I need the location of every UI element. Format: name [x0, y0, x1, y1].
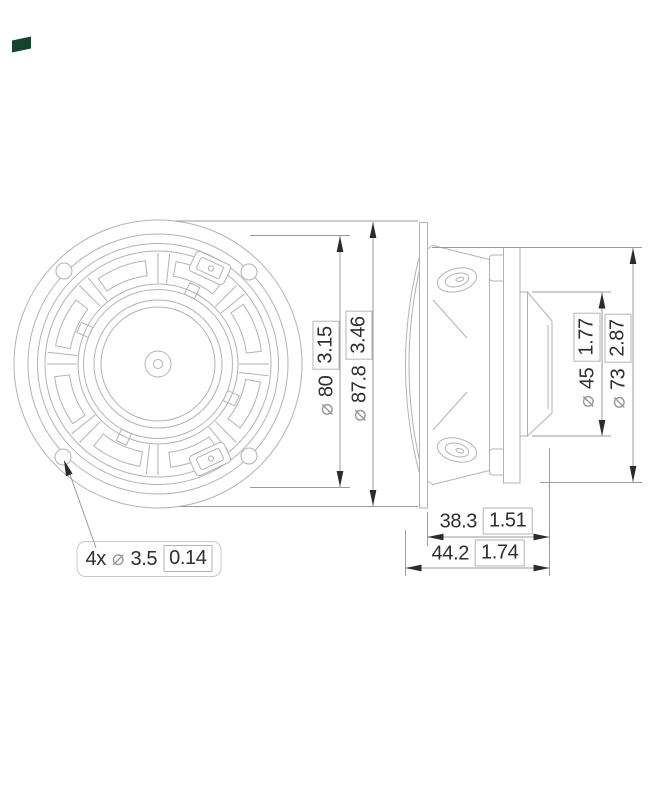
metric-value: 87.8: [349, 366, 369, 403]
metric-value: 73: [608, 369, 628, 390]
inch-value: 0.14: [163, 545, 212, 572]
dim-magnet-rear-label: ⌀ 45 1.77: [574, 312, 601, 407]
front-view: [14, 220, 302, 508]
diameter-icon: ⌀: [577, 395, 598, 408]
inch-value: 2.87: [605, 313, 632, 362]
dim-bolt-holes-callout: 4x ⌀ 3.5 0.14: [77, 541, 222, 577]
metric-value: 80: [316, 376, 336, 397]
inch-value: 1.74: [475, 540, 524, 567]
dim-overall-diameter-label: ⌀ 87.8 3.46: [346, 310, 373, 421]
metric-value: 3.5: [131, 549, 158, 569]
brand-logo: [12, 37, 31, 53]
diameter-icon: ⌀: [112, 548, 125, 569]
inch-value: 1.77: [574, 312, 601, 361]
dim-overall-depth-label: 44.2 1.74: [432, 540, 525, 567]
hole-count: 4x: [86, 549, 106, 569]
basket-spokes: [47, 253, 269, 475]
metric-value: 45: [577, 368, 597, 389]
metric-value: 38.3: [440, 511, 477, 531]
bolt-hole-leader-line: [67, 466, 96, 548]
terminal-block-bottom: [188, 441, 232, 477]
dim-mounting-depth-label: 38.3 1.51: [440, 508, 533, 535]
diameter-icon: ⌀: [349, 409, 370, 422]
metric-value: 44.2: [432, 543, 469, 563]
drawing-page: ⌀ 80 3.15 ⌀ 87.8 3.46 ⌀ 45 1.77 ⌀ 73 2.8…: [0, 0, 650, 794]
dim-bolt-circle-label: ⌀ 80 3.15: [313, 320, 340, 415]
inch-value: 3.46: [346, 310, 373, 359]
side-view: [406, 223, 553, 509]
diameter-icon: ⌀: [608, 396, 629, 409]
screw-holes: [55, 263, 257, 465]
inch-value: 1.51: [483, 508, 532, 535]
terminal-block-top: [188, 250, 232, 286]
diameter-icon: ⌀: [316, 403, 337, 416]
dim-magnet-front-label: ⌀ 73 2.87: [605, 313, 632, 408]
inch-value: 3.15: [313, 320, 340, 369]
